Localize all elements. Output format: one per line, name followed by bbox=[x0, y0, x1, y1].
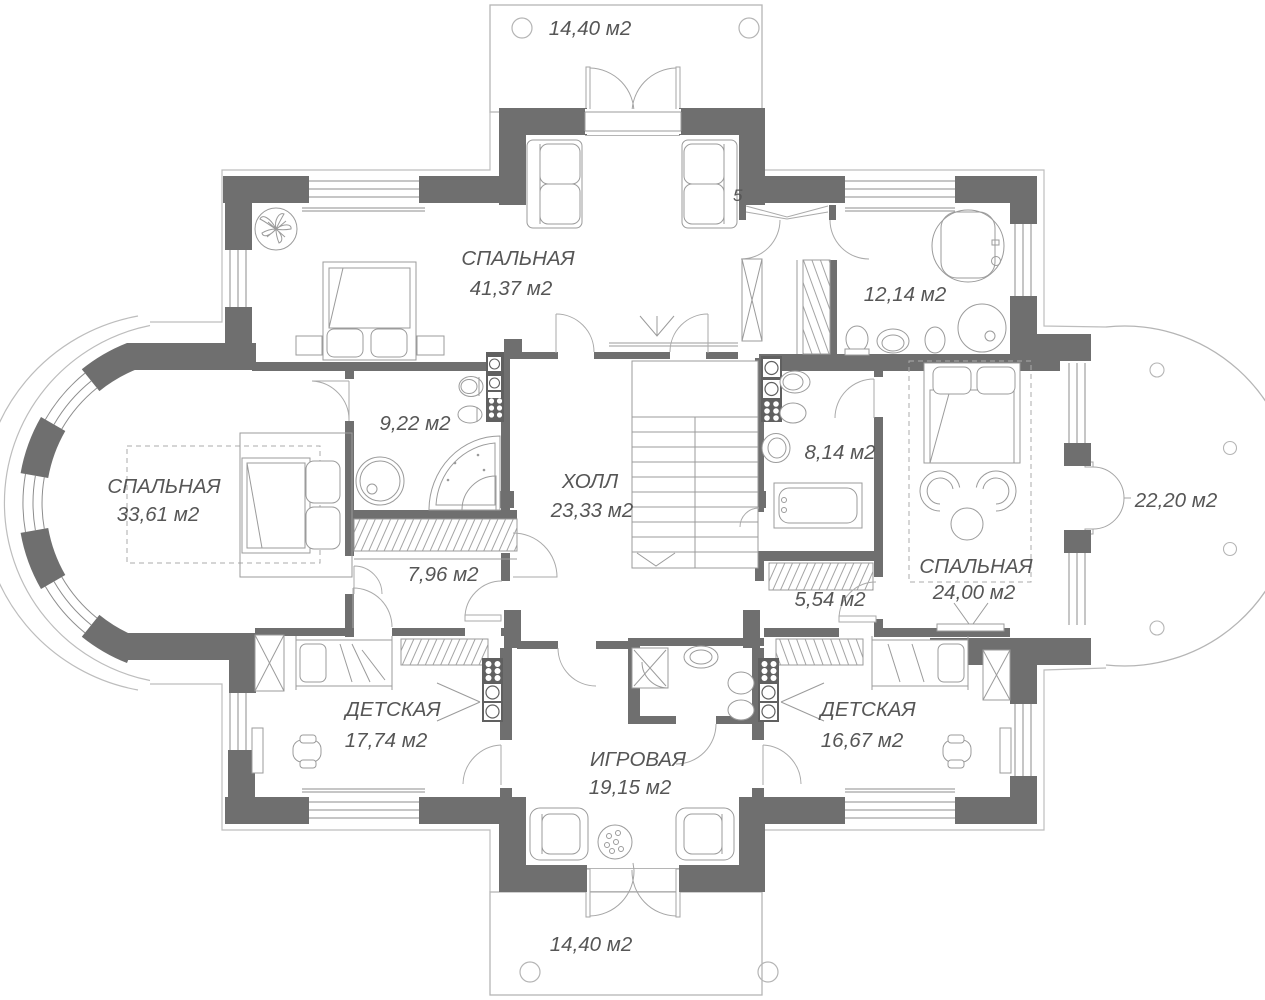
svg-text:СПАЛЬНАЯ: СПАЛЬНАЯ bbox=[461, 247, 574, 270]
svg-text:9,22 м2: 9,22 м2 bbox=[379, 412, 451, 435]
svg-text:ДЕТСКАЯ: ДЕТСКАЯ bbox=[818, 698, 915, 721]
svg-text:17,74 м2: 17,74 м2 bbox=[345, 729, 428, 752]
svg-text:СПАЛЬНАЯ: СПАЛЬНАЯ bbox=[107, 475, 220, 498]
svg-text:19,15 м2: 19,15 м2 bbox=[589, 776, 672, 799]
svg-text:16,67 м2: 16,67 м2 bbox=[821, 729, 904, 752]
svg-text:СПАЛЬНАЯ: СПАЛЬНАЯ bbox=[919, 555, 1032, 578]
svg-text:23,33 м2: 23,33 м2 bbox=[550, 499, 634, 522]
svg-text:5: 5 bbox=[733, 186, 743, 205]
svg-text:ДЕТСКАЯ: ДЕТСКАЯ bbox=[343, 698, 440, 721]
svg-text:ИГРОВАЯ: ИГРОВАЯ bbox=[590, 748, 686, 771]
svg-text:24,00 м2: 24,00 м2 bbox=[932, 581, 1016, 604]
svg-text:7,96 м2: 7,96 м2 bbox=[407, 563, 479, 586]
svg-text:41,37 м2: 41,37 м2 bbox=[470, 277, 553, 300]
svg-text:22,20 м2: 22,20 м2 bbox=[1134, 489, 1218, 512]
svg-text:14,40 м2: 14,40 м2 bbox=[550, 933, 633, 956]
svg-text:12,14 м2: 12,14 м2 bbox=[864, 283, 947, 306]
svg-text:14,40 м2: 14,40 м2 bbox=[549, 17, 632, 40]
svg-text:8,14 м2: 8,14 м2 bbox=[804, 441, 876, 464]
svg-text:33,61 м2: 33,61 м2 bbox=[117, 503, 200, 526]
svg-text:5,54 м2: 5,54 м2 bbox=[794, 588, 866, 611]
svg-text:ХОЛЛ: ХОЛЛ bbox=[561, 470, 619, 493]
